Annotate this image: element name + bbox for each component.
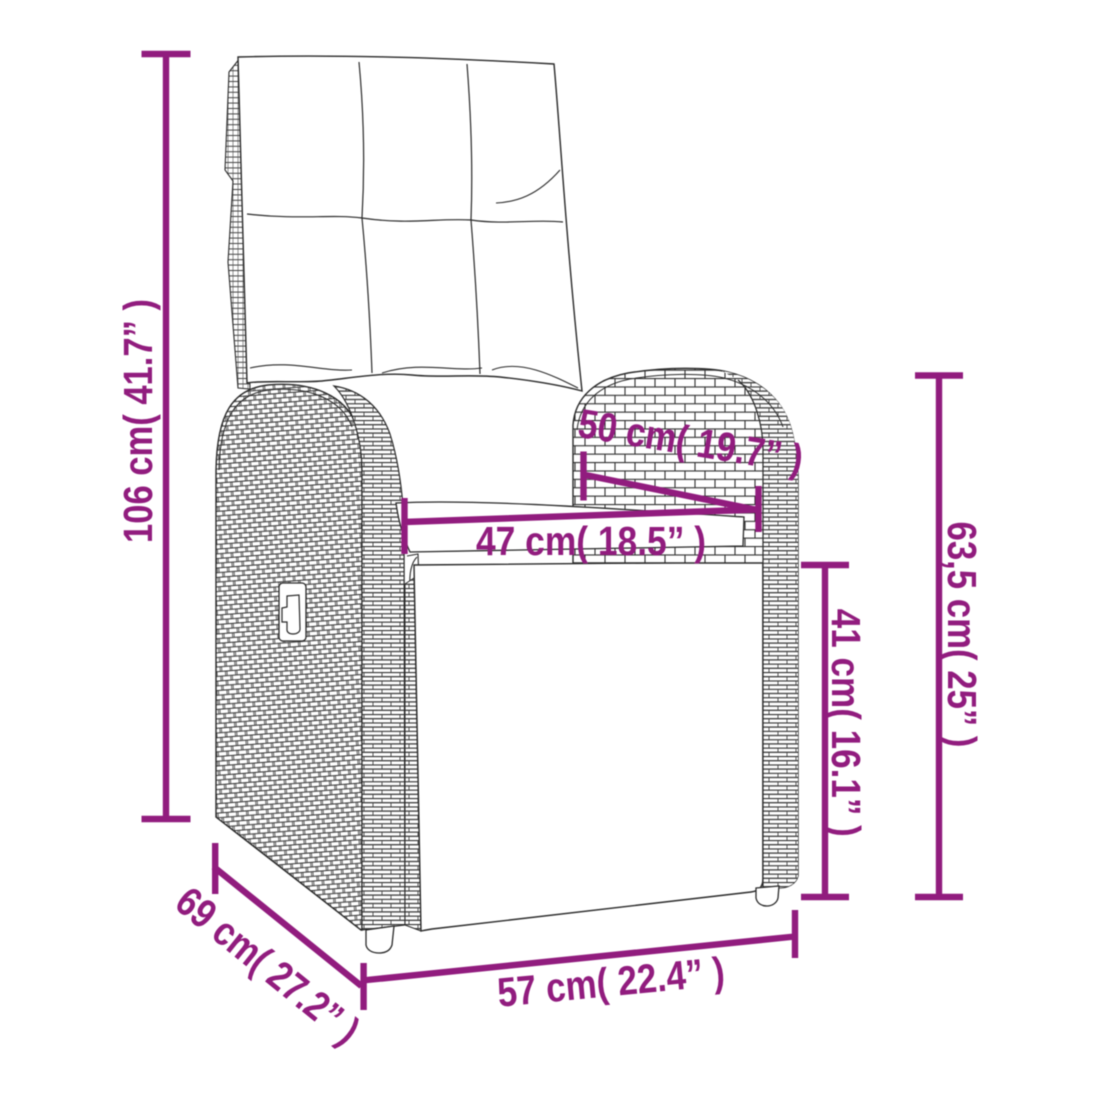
svg-text:41 cm( 16.1” ): 41 cm( 16.1” ) — [823, 609, 869, 837]
svg-text:63,5 cm( 25” ): 63,5 cm( 25” ) — [939, 522, 985, 748]
svg-text:106 cm( 41.7” ): 106 cm( 41.7” ) — [115, 299, 161, 543]
svg-text:47 cm( 18.5” ): 47 cm( 18.5” ) — [476, 518, 706, 564]
